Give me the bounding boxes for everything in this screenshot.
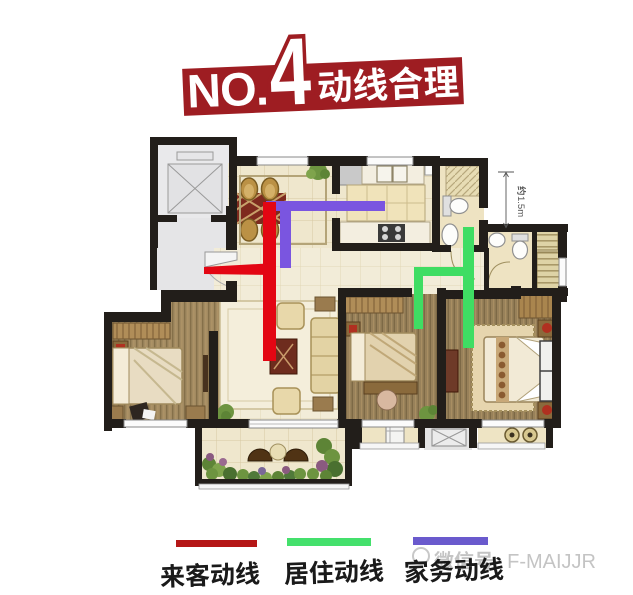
svg-text:NO.: NO.	[186, 61, 269, 117]
svg-text:4: 4	[267, 19, 313, 127]
svg-text:: F-MAIJJR: : F-MAIJJR	[496, 551, 596, 573]
svg-text:1.5m: 1.5m	[515, 196, 526, 217]
